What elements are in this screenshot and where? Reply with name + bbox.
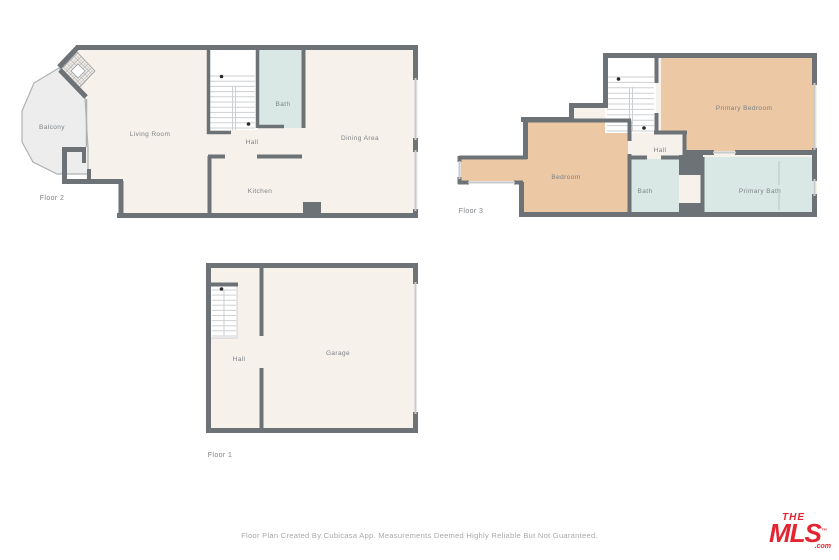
floorplan-page: Balcony Living Room Hall Bath Dining Are… [0, 0, 839, 560]
room-label-primary-bedroom: Primary Bedroom [716, 105, 773, 112]
floor-3-plan: Primary Bedroom Bedroom Hall Bath Primar… [458, 53, 817, 217]
stair-newel-dot [220, 75, 224, 79]
the-mls-logo: THE MLS™ .com [769, 513, 831, 550]
room-label-garage: Garage [326, 350, 350, 357]
floor-3-caption: Floor 3 [459, 208, 484, 215]
room-label-bedroom: Bedroom [551, 174, 580, 181]
floor-1-caption: Floor 1 [208, 452, 233, 459]
logo-mls-letters: MLS [769, 518, 821, 548]
stair-newel-dot [642, 126, 646, 130]
room-label-primary-bath: Primary Bath [739, 188, 781, 195]
logo-trademark: ™ [821, 528, 827, 534]
floorplan-canvas: Balcony Living Room Hall Bath Dining Are… [0, 0, 839, 560]
room-label-bath-f3: Bath [638, 188, 653, 195]
room-label-hall-f3: Hall [654, 147, 667, 154]
logo-mls-text: MLS™ [769, 523, 831, 544]
stair-newel-dot [247, 122, 251, 126]
floor3-bath-room [631, 159, 679, 213]
floor-2-caption: Floor 2 [40, 195, 65, 202]
bedroom-room [461, 121, 628, 215]
primary-bath-room [704, 157, 813, 214]
room-label-hall-f2: Hall [246, 139, 259, 146]
stair-newel-dot [220, 287, 224, 291]
room-label-living-room: Living Room [130, 131, 171, 138]
room-label-balcony: Balcony [39, 124, 65, 131]
room-label-hall-f1: Hall [233, 356, 246, 363]
room-label-bath-f2: Bath [276, 101, 291, 108]
floor1-interior [208, 263, 416, 431]
floor-1-plan: Hall Garage Floor 1 [206, 263, 418, 459]
room-label-dining-area: Dining Area [341, 135, 379, 142]
chase-block [679, 155, 703, 175]
stair-newel-dot [617, 77, 621, 81]
chimney-block [303, 202, 321, 215]
room-label-kitchen: Kitchen [248, 188, 272, 195]
floor-2-plan: Balcony Living Room Hall Bath Dining Are… [22, 45, 418, 218]
chase-block [679, 203, 701, 215]
floor2-bath-room [259, 47, 303, 128]
disclaimer-text: Floor Plan Created By Cubicasa App. Meas… [0, 531, 839, 540]
